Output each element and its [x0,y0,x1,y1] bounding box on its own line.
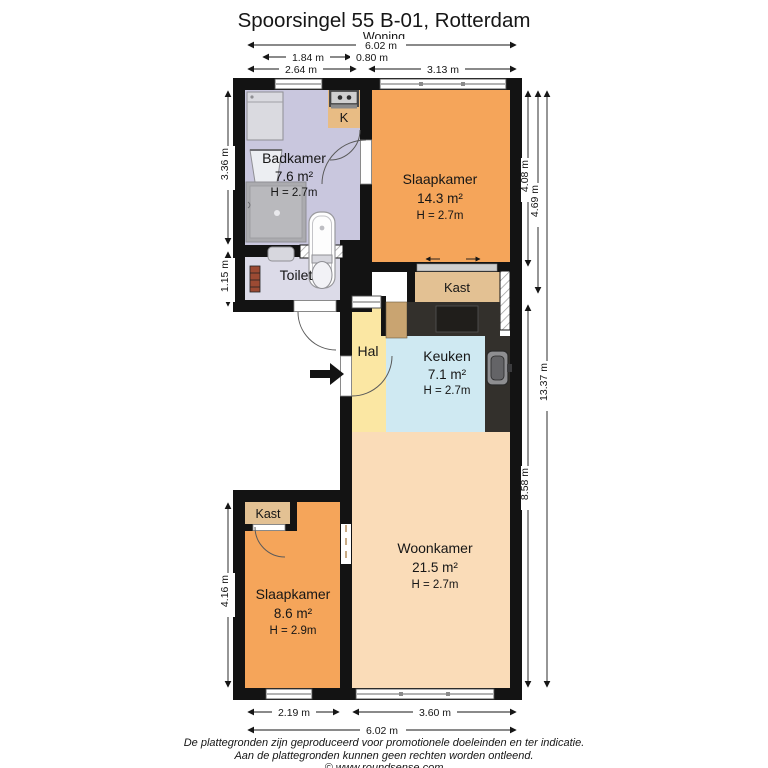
slaapkamer1-height: H = 2.7m [417,210,464,222]
window-slaapkamer2-bottom [266,689,312,699]
kitchen-sink-icon [487,351,512,385]
door-toilet [294,301,336,351]
stove-icon [329,90,359,109]
toilet-sink-icon [268,247,294,261]
footer-line3: © www.roundsense.com [325,762,444,768]
page-title: Spoorsingel 55 B-01, Rotterdam [238,9,531,32]
slaapkamer1-area: 14.3 m² [417,191,463,206]
wall-hal-exterior [340,312,352,502]
dim-right-total: 13.37 m [538,363,550,401]
badkamer-height: H = 2.7m [271,187,318,199]
window-interior-slaapkamer2 [341,524,351,564]
window-slaapkamer1-top [380,79,506,89]
window-hal-top [352,296,381,308]
woonkamer-height: H = 2.7m [412,579,459,591]
dim-top-total: 6.02 m [365,40,397,52]
slaapkamer2-area: 8.6 m² [274,606,313,621]
wall-kast1-left [407,271,415,302]
floorplan-page: Spoorsingel 55 B-01, Rotterdam Woning [0,0,768,768]
dim-bottom-total: 6.02 m [366,725,398,737]
window-badkamer-top [275,79,322,89]
dim-left-slaapkamer2: 4.16 m [219,575,231,607]
dim-top-badkamer: 2.64 m [285,64,317,76]
keuken-height: H = 2.7m [424,385,471,397]
footer-line1: De plattegronden zijn geproduceerd voor … [184,737,585,749]
dim-bottom-woonkamer: 3.60 m [419,707,451,719]
dim-bottom-slaapkamer2: 2.19 m [278,707,310,719]
dim-top-k-closet: 0.80 m [356,52,388,64]
oven-icon [436,306,478,332]
dim-top-slaapkamer: 3.13 m [427,64,459,76]
woonkamer-area: 21.5 m² [412,560,458,575]
slaapkamer1-label: Slaapkamer [403,171,478,187]
dim-right-upper: 4.69 m [529,185,541,217]
footer: De plattegronden zijn geproduceerd voor … [184,737,585,768]
badkamer-label: Badkamer [262,150,326,166]
footer-line2: Aan de plattegronden kunnen geen rechten… [233,750,533,762]
slaapkamer2-height: H = 2.9m [270,625,317,637]
slaapkamer2-label: Slaapkamer [256,586,331,602]
radiator-icon [250,266,260,292]
wall-block2-top [233,490,352,502]
shaft-hatch-keuken [500,271,510,330]
hal-floor [352,306,386,432]
entrance-arrow-icon [310,363,344,385]
woonkamer-label: Woonkamer [397,540,473,556]
k-closet-label: K [340,110,349,125]
floorplan-drawing: Spoorsingel 55 B-01, Rotterdam Woning [0,0,768,768]
washer-icon [247,92,283,140]
keuken-area: 7.1 m² [428,367,467,382]
kast1-label: Kast [444,280,470,295]
keuken-label: Keuken [423,348,470,364]
wall-hal-keuken [381,296,386,336]
badkamer-area: 7.6 m² [275,169,314,184]
kast2-label: Kast [255,507,281,521]
toilet-label: Toilet [280,267,313,283]
toilet-icon [312,255,332,289]
dim-right-lower: 8.58 m [519,468,531,500]
dim-left-toilet: 1.15 m [219,260,231,292]
dim-top-badkamer-inner: 1.84 m [292,52,324,64]
dim-left-badkamer: 3.36 m [219,148,231,180]
window-woonkamer-bottom [356,689,494,699]
hal-label: Hal [357,343,378,359]
